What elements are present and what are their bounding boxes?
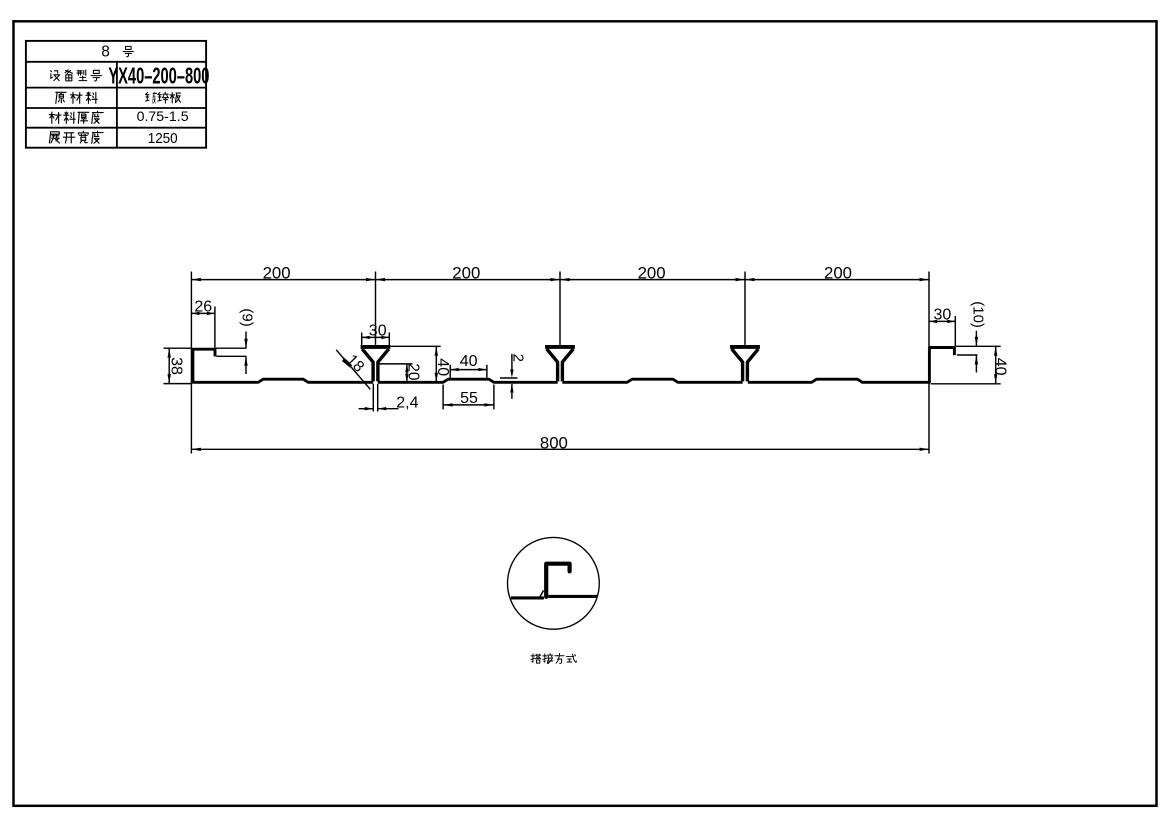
svg-text:2: 2 <box>509 354 526 362</box>
svg-text:1250: 1250 <box>148 131 178 147</box>
svg-text:40: 40 <box>434 358 451 376</box>
svg-text:YX40–200–800: YX40–200–800 <box>108 62 209 88</box>
svg-text:40: 40 <box>460 353 478 370</box>
svg-text:40: 40 <box>991 358 1008 376</box>
svg-text:2,4: 2,4 <box>396 394 418 411</box>
svg-text:0.75-1.5: 0.75-1.5 <box>137 109 189 124</box>
svg-text:200: 200 <box>638 264 666 283</box>
svg-text:30: 30 <box>369 323 387 340</box>
svg-text:(10): (10) <box>969 301 986 328</box>
svg-text:20: 20 <box>404 363 421 381</box>
svg-text:8: 8 <box>101 44 110 61</box>
svg-text:200: 200 <box>452 264 480 283</box>
svg-text:800: 800 <box>540 433 568 452</box>
svg-text:55: 55 <box>460 390 478 407</box>
svg-text:(9): (9) <box>239 308 256 326</box>
svg-text:200: 200 <box>824 264 852 283</box>
svg-text:26: 26 <box>194 299 212 316</box>
svg-text:38: 38 <box>167 357 184 375</box>
svg-text:200: 200 <box>263 264 291 283</box>
svg-text:30: 30 <box>934 307 952 324</box>
